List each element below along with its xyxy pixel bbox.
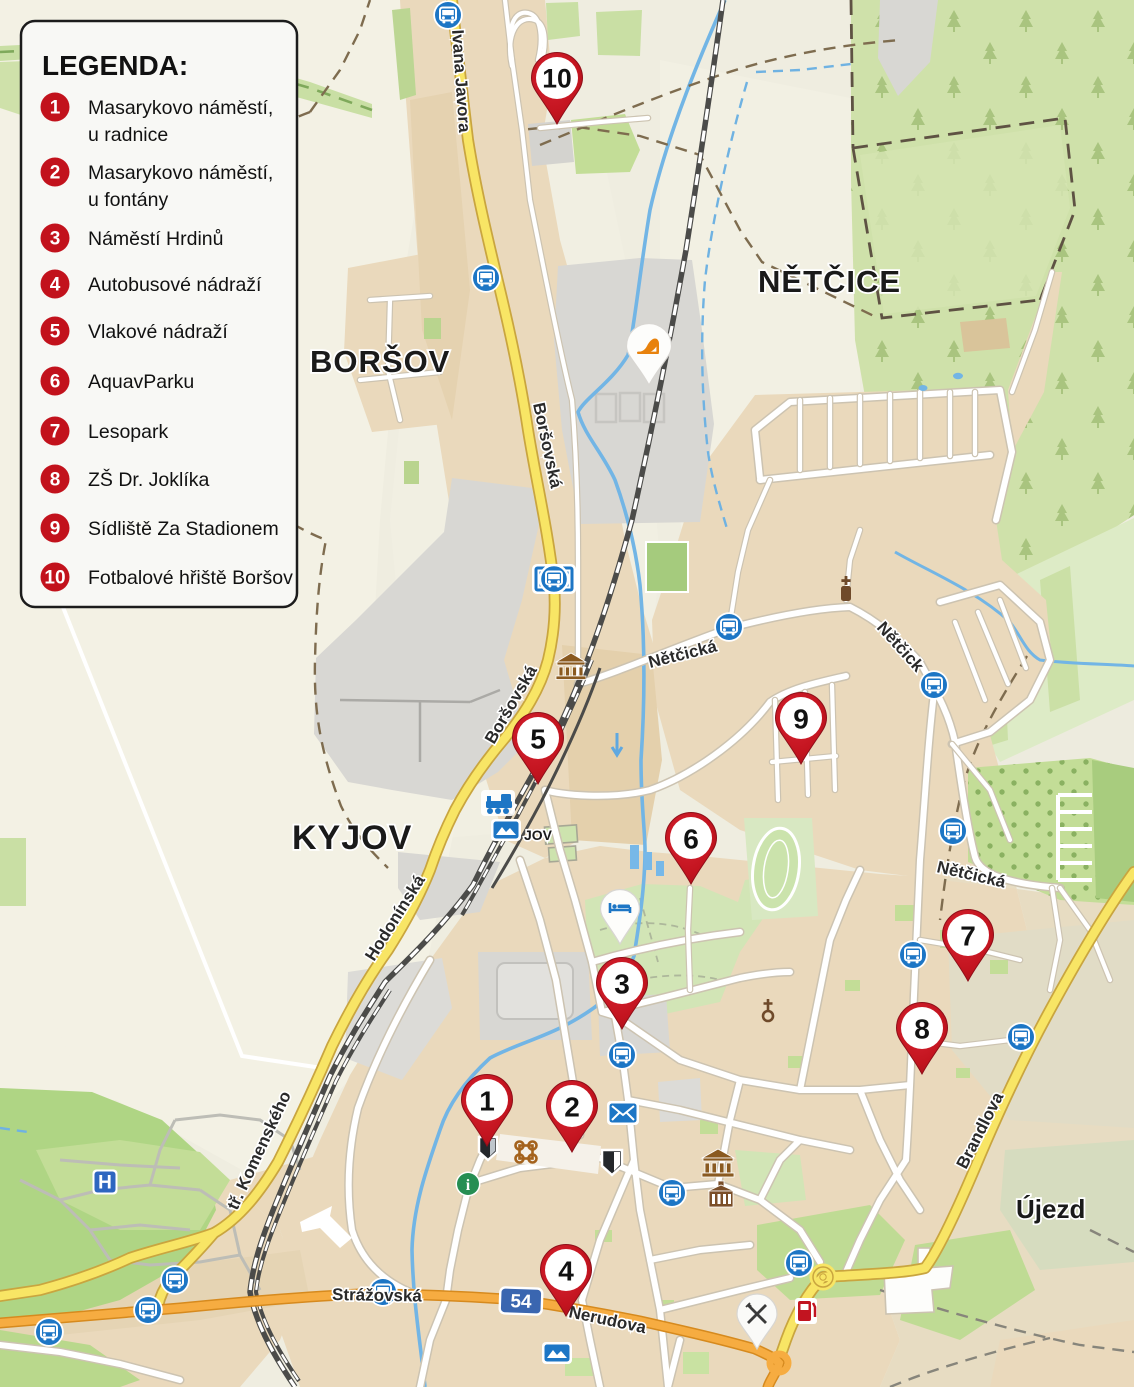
svg-text:Vlakové nádraží: Vlakové nádraží <box>88 321 228 343</box>
svg-text:Náměstí Hrdinů: Náměstí Hrdinů <box>88 228 223 250</box>
svg-text:Fotbalové hřiště Boršov: Fotbalové hřiště Boršov <box>88 567 293 589</box>
svg-text:NĚTČICE: NĚTČICE <box>758 263 901 299</box>
svg-text:5: 5 <box>530 724 546 755</box>
svg-text:Lesopark: Lesopark <box>88 421 168 443</box>
svg-text:Masarykovo náměstí,: Masarykovo náměstí, <box>88 97 273 119</box>
svg-text:KYJOV: KYJOV <box>292 819 412 857</box>
svg-text:4: 4 <box>558 1256 574 1287</box>
svg-text:Újezd: Újezd <box>1016 1194 1085 1224</box>
svg-text:Autobusové nádraží: Autobusové nádraží <box>88 274 262 296</box>
svg-text:i: i <box>466 1177 471 1194</box>
svg-text:2: 2 <box>564 1092 580 1123</box>
svg-text:6: 6 <box>683 824 699 855</box>
svg-text:u radnice: u radnice <box>88 124 168 146</box>
svg-text:10: 10 <box>542 64 571 94</box>
svg-text:H: H <box>98 1173 112 1194</box>
svg-text:3: 3 <box>614 969 630 1000</box>
svg-text:Masarykovo náměstí,: Masarykovo náměstí, <box>88 162 273 184</box>
svg-text:9: 9 <box>793 704 809 735</box>
svg-text:10: 10 <box>44 568 65 589</box>
svg-text:u fontány: u fontány <box>88 189 168 211</box>
svg-text:7: 7 <box>50 422 61 443</box>
svg-text:1: 1 <box>479 1086 495 1117</box>
svg-text:AquavParku: AquavParku <box>88 371 194 393</box>
svg-text:JOV: JOV <box>524 827 553 843</box>
svg-text:54: 54 <box>510 1291 532 1313</box>
svg-text:3: 3 <box>50 229 61 250</box>
svg-text:7: 7 <box>960 921 976 952</box>
svg-text:LEGENDA:: LEGENDA: <box>42 50 188 81</box>
svg-text:Strážovská: Strážovská <box>332 1285 423 1306</box>
svg-text:6: 6 <box>50 372 61 393</box>
svg-text:1: 1 <box>50 98 61 119</box>
svg-text:8: 8 <box>914 1014 930 1045</box>
svg-text:5: 5 <box>50 322 61 343</box>
svg-text:2: 2 <box>50 163 61 184</box>
svg-text:Sídliště Za Stadionem: Sídliště Za Stadionem <box>88 518 279 540</box>
svg-text:4: 4 <box>50 275 61 296</box>
svg-text:ZŠ Dr. Joklíka: ZŠ Dr. Joklíka <box>88 468 210 491</box>
svg-text:9: 9 <box>50 519 61 540</box>
svg-text:8: 8 <box>50 470 61 491</box>
svg-text:BORŠOV: BORŠOV <box>310 343 450 379</box>
